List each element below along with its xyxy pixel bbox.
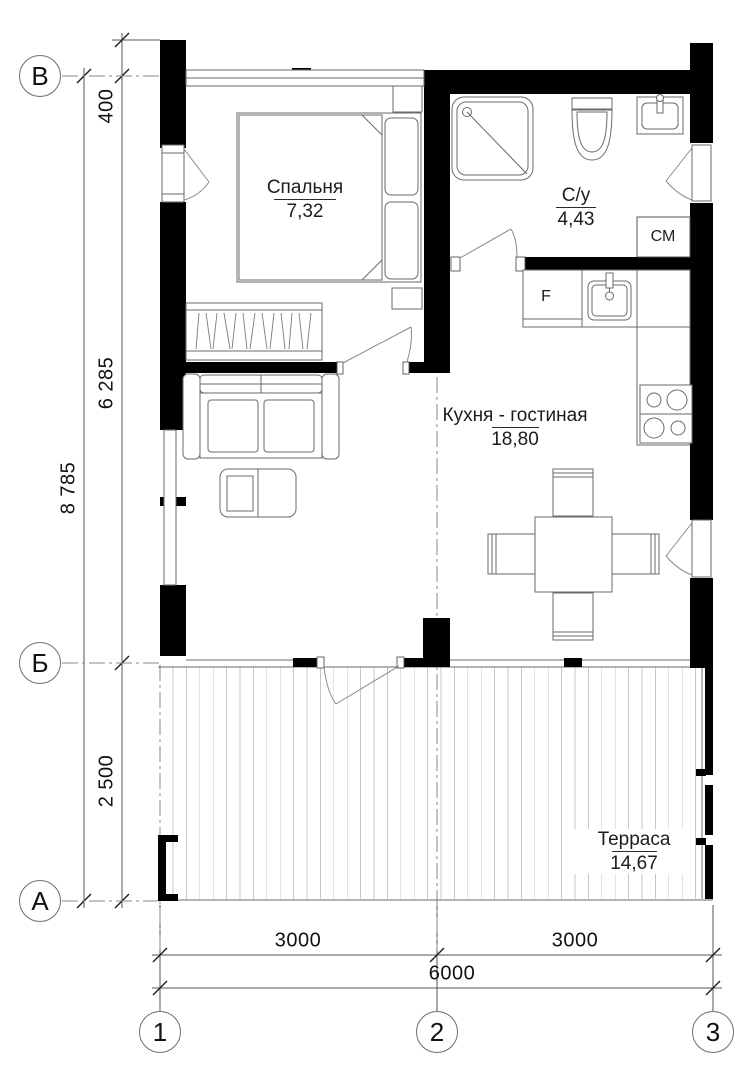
label-divider — [492, 427, 539, 428]
sofa-icon — [183, 374, 339, 459]
pillow-icon — [385, 202, 418, 279]
window-swing-icon — [666, 148, 692, 200]
window-swing-icon — [184, 149, 209, 200]
pillow-icon — [385, 118, 418, 195]
floor-plan: Спальня 7,32 С/у 4,43 Кухня - гостиная 1… — [0, 0, 748, 1092]
axis-bubble-row-top: В — [19, 55, 61, 97]
dim-upper-span: 6 285 — [96, 357, 119, 410]
bathroom-east-window-icon — [692, 145, 711, 201]
bathroom-door-swing-icon — [460, 229, 517, 258]
room-label-bedroom: Спальня 7,32 — [235, 177, 375, 222]
label-divider — [556, 207, 596, 208]
dining-table-icon — [535, 517, 612, 592]
chair-icon — [612, 534, 659, 574]
stove-icon — [640, 385, 692, 443]
room-area: 4,43 — [558, 209, 595, 230]
washing-machine-tag: СМ — [651, 228, 676, 246]
coffee-table-icon — [220, 469, 296, 517]
chair-icon — [553, 469, 593, 516]
shower-icon — [452, 97, 533, 180]
living-west-window-icon — [164, 430, 176, 585]
room-label-kitchen-living: Кухня - гостиная 18,80 — [415, 405, 615, 450]
room-label-bathroom: С/у 4,43 — [516, 185, 636, 230]
room-area: 7,32 — [287, 201, 324, 222]
dining-set-icon — [488, 469, 659, 640]
dim-left-span: 3000 — [275, 930, 322, 953]
axis-bubble-col-right: 3 — [692, 1011, 734, 1053]
chair-icon — [553, 593, 593, 640]
room-name: Спальня — [267, 177, 343, 198]
axis-bubble-row-bottom: А — [19, 880, 61, 922]
dim-right-span: 3000 — [552, 930, 599, 953]
plan-linework — [0, 0, 748, 1092]
axis-bubble-col-left: 1 — [139, 1011, 181, 1053]
dim-top-offset: 400 — [96, 89, 119, 124]
kitchen-east-window-icon — [692, 520, 711, 577]
window-swing-icon — [666, 523, 692, 575]
nightstand-icon — [392, 288, 422, 309]
axis-bubble-col-mid: 2 — [416, 1011, 458, 1053]
dim-total-width: 6000 — [429, 963, 476, 986]
bedroom-west-window-icon — [162, 145, 184, 202]
fridge-tag: F — [541, 288, 551, 306]
toilet-icon — [572, 98, 612, 160]
room-name: Кухня - гостиная — [443, 405, 588, 426]
wardrobe-icon — [186, 303, 322, 360]
bedroom-door-swing-icon — [343, 327, 412, 363]
room-name: С/у — [562, 185, 591, 206]
entrance-door-swing-icon — [324, 666, 399, 704]
washbasin-icon — [637, 95, 683, 135]
label-divider — [274, 199, 336, 200]
room-area: 18,80 — [491, 429, 539, 450]
axis-bubble-row-mid: Б — [19, 642, 61, 684]
room-label-terrace: Терраса 14,67 — [574, 829, 694, 874]
label-divider — [612, 851, 657, 852]
chair-icon — [488, 534, 535, 574]
dim-lower-span: 2 500 — [96, 755, 119, 808]
dim-total-height: 8 785 — [58, 462, 81, 515]
room-area: 14,67 — [610, 853, 658, 874]
room-name: Терраса — [598, 829, 671, 850]
nightstand-icon — [393, 86, 422, 112]
